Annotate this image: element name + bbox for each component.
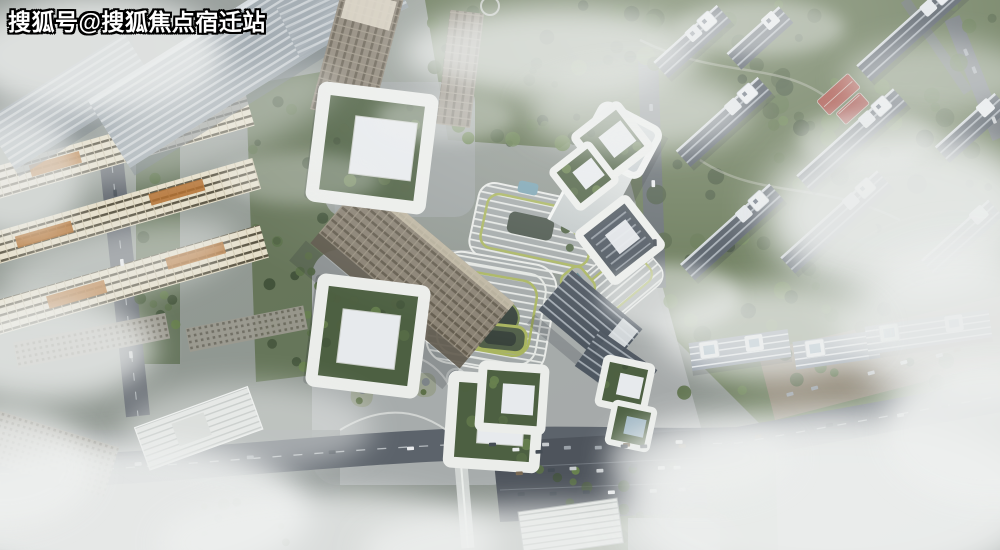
aerial-render: 搜狐号@搜狐焦点宿迁站 <box>0 0 1000 550</box>
watermark-text: 搜狐号@搜狐焦点宿迁站 <box>8 9 266 35</box>
scene-svg <box>0 0 1000 550</box>
watermark: 搜狐号@搜狐焦点宿迁站 <box>8 8 266 37</box>
